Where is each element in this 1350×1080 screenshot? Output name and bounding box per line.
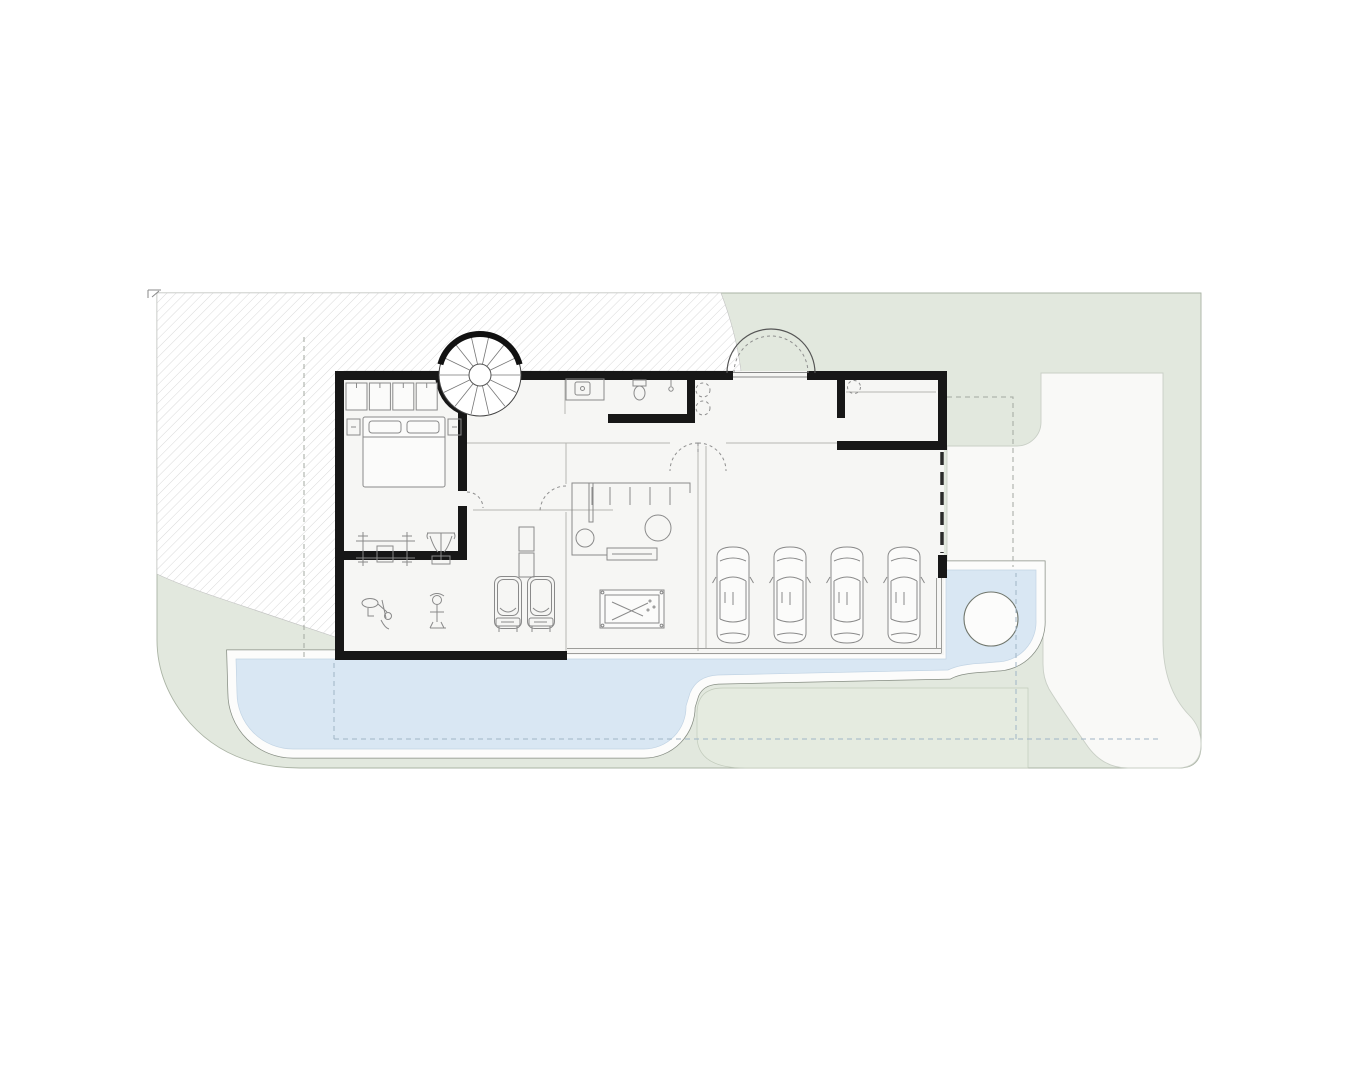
wall-bedroom-east-lower	[458, 506, 467, 560]
wall-shower-pier	[687, 373, 695, 423]
floor-plan-drawing	[0, 0, 1350, 1080]
wall-bedroom-east-upper	[458, 410, 467, 491]
car-icon	[884, 547, 925, 643]
wall-west	[335, 371, 344, 660]
wall-top-east	[807, 371, 947, 380]
house	[335, 329, 947, 660]
wall-gym-south	[335, 651, 567, 660]
wall-east-upper	[938, 371, 947, 450]
car-icon	[827, 547, 868, 643]
spa-circle	[964, 592, 1018, 646]
wall-storage-south	[837, 441, 947, 450]
floor-plan-page	[0, 0, 1350, 1080]
wall-bath-south	[608, 414, 687, 423]
wall-east-stub	[938, 555, 947, 578]
wall-storage-west	[837, 375, 845, 418]
bed	[347, 417, 461, 487]
wall-top-west	[335, 371, 733, 380]
lawn-southeast	[697, 688, 1028, 768]
car-icon	[713, 547, 754, 643]
car-icon	[770, 547, 811, 643]
billiard-table	[600, 590, 664, 628]
spiral-stair	[439, 334, 521, 416]
